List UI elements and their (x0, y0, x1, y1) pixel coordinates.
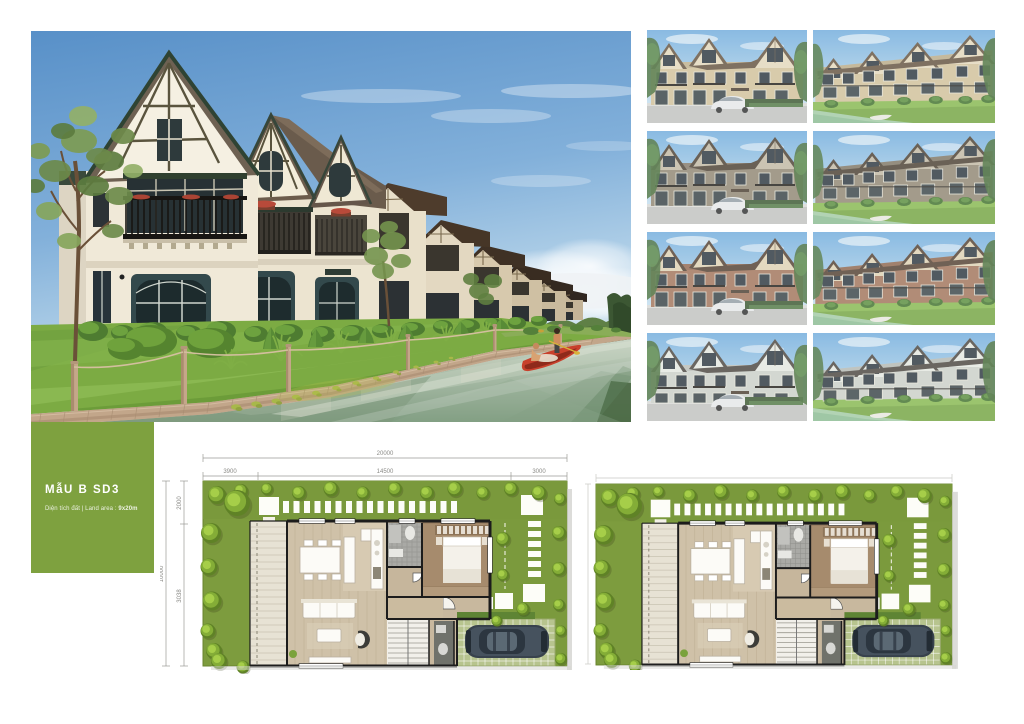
svg-text:3900: 3900 (223, 469, 237, 475)
svg-text:3000: 3000 (532, 469, 546, 475)
svg-text:3038: 3038 (177, 589, 183, 603)
svg-text:10000: 10000 (160, 565, 165, 582)
svg-text:14500: 14500 (377, 469, 394, 475)
svg-text:2000: 2000 (177, 496, 183, 510)
svg-text:20000: 20000 (377, 451, 394, 457)
